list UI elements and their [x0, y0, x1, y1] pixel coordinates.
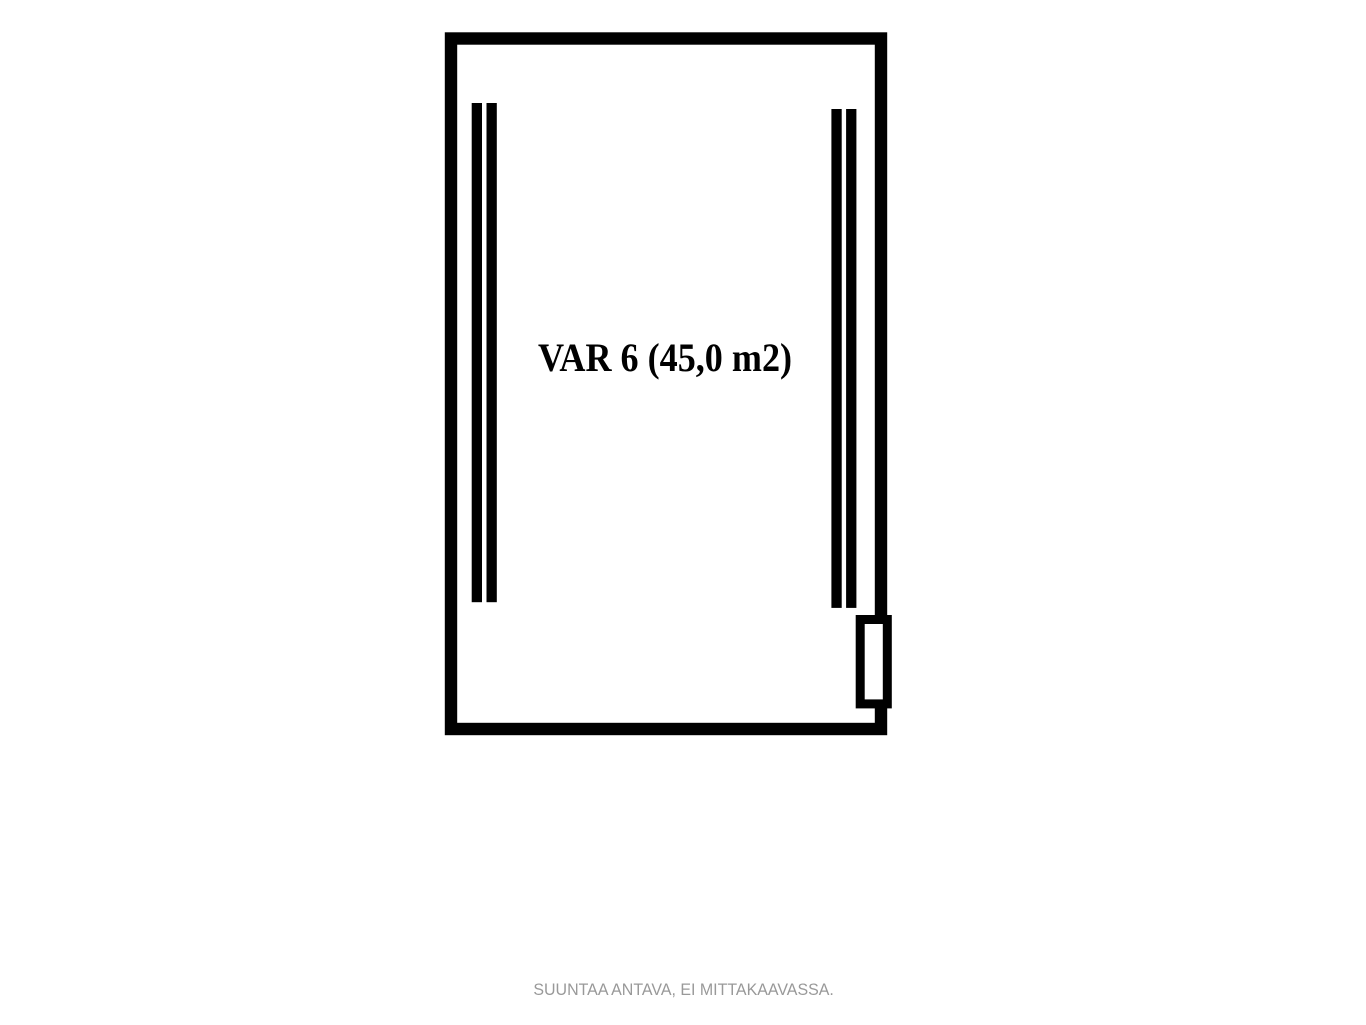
svg-text:VAR 6 (45,0 m2): VAR 6 (45,0 m2) [538, 337, 792, 381]
svg-text:SUUNTAA ANTAVA, EI MITTAKAAVAS: SUUNTAA ANTAVA, EI MITTAKAAVASSA. [533, 981, 833, 1000]
